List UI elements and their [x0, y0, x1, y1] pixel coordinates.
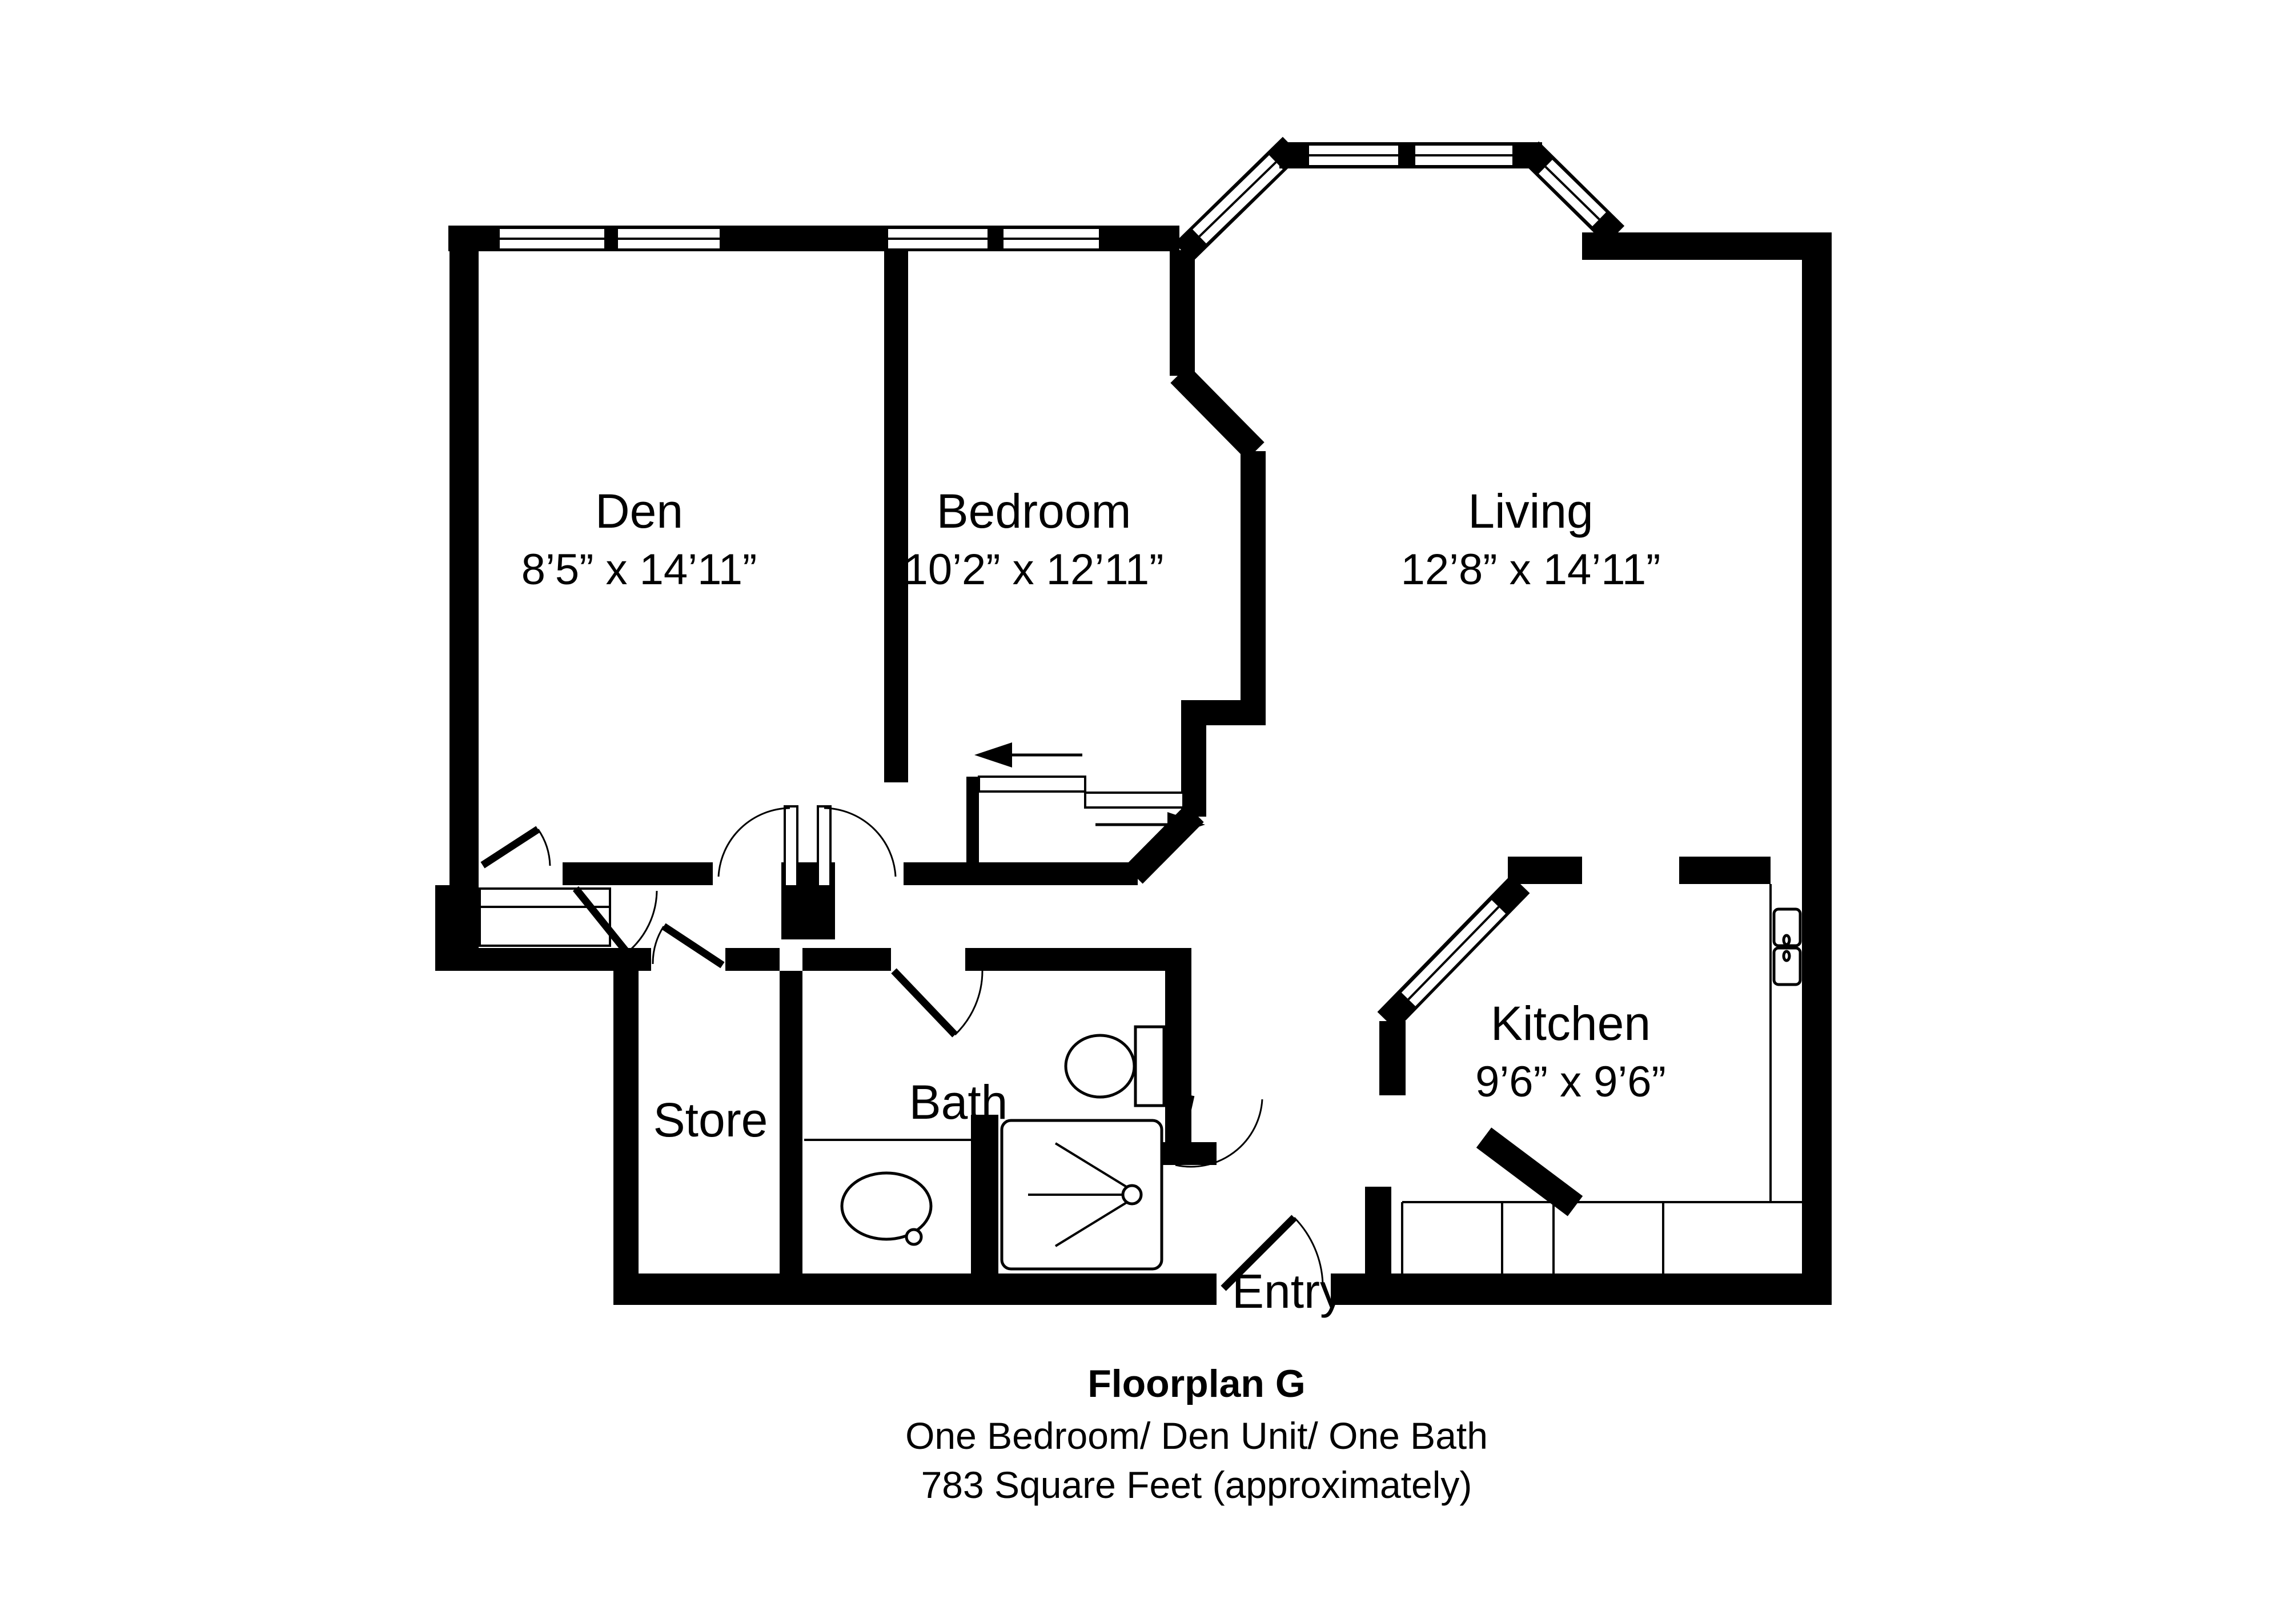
den-door-icon [483, 829, 550, 866]
store-door-icon [653, 926, 722, 965]
shower-partition [971, 1115, 998, 1274]
vanity-sink-icon [804, 1140, 971, 1244]
bath-door-icon [894, 971, 982, 1035]
bath-right-wall [1165, 948, 1191, 1165]
den-label: Den [595, 484, 683, 538]
bedroom-bottom-wall [904, 862, 966, 885]
kitchen-left-wall [1379, 1021, 1406, 1095]
floorplan-svg: Den 8’5” x 14’11” Bedroom 10’2” x 12’11”… [0, 0, 2296, 1623]
arrow-left-icon [974, 742, 1012, 768]
hall-door-icon [576, 889, 657, 953]
bedroom-label: Bedroom [937, 484, 1131, 538]
kitchen-cabinets-icon [1402, 1202, 1802, 1274]
den-bottom-wall [563, 862, 713, 885]
bath-top-wall-right [965, 948, 1165, 971]
caption: Floorplan G One Bedroom/ Den Unit/ One B… [905, 1362, 1488, 1506]
living-top-wall [1582, 232, 1832, 260]
bottom-wall-right [1331, 1274, 1832, 1305]
kitchen-dimensions: 9’6” x 9’6” [1475, 1058, 1666, 1106]
sliding-door-icon [974, 742, 1205, 837]
toilet-icon [1066, 1027, 1164, 1106]
store-left-wall [613, 971, 639, 1274]
caption-line3: 783 Square Feet (approximately) [921, 1464, 1472, 1506]
closet-icon [480, 889, 610, 946]
den-dimensions: 8’5” x 14’11” [521, 545, 757, 594]
bay-window-icon [1183, 146, 1615, 252]
bedroom-right-jog [1181, 700, 1266, 725]
kitchen-top-wall-right [1679, 857, 1771, 884]
caption-line2: One Bedroom/ Den Unit/ One Bath [905, 1415, 1488, 1457]
kitchen-top-wall-left [1508, 857, 1582, 884]
right-outer-wall [1802, 232, 1832, 1305]
store-label: Store [653, 1093, 768, 1147]
bedroom-living-divider-upper [1170, 250, 1195, 376]
living-dimensions: 12’8” x 14’11” [1401, 545, 1661, 594]
kitchen-label: Kitchen [1491, 997, 1651, 1050]
bath-label: Bath [909, 1075, 1008, 1129]
hall-bottom-left-wall [435, 948, 651, 971]
entry-label: Entry [1232, 1264, 1344, 1318]
bedroom-dimensions: 10’2” x 12’11” [904, 545, 1164, 594]
den-bedroom-divider [884, 251, 908, 782]
entry-right-wall [1365, 1187, 1391, 1274]
shower-icon [1002, 1120, 1162, 1269]
bedroom-living-divider [1241, 451, 1266, 702]
living-label: Living [1468, 484, 1593, 538]
den-left-wall [449, 226, 479, 891]
bottom-wall-left [613, 1274, 1217, 1305]
bedroom-right-wall-lower [1181, 724, 1206, 817]
floorplan-page: Den 8’5” x 14’11” Bedroom 10’2” x 12’11”… [0, 0, 2296, 1623]
kitchen-entry-angled-wall [1484, 1138, 1575, 1206]
bath-top-wall-left [802, 948, 891, 971]
store-top-wall [725, 948, 780, 971]
store-bath-divider [780, 971, 802, 1274]
kitchen-sink-icon [1771, 884, 1800, 1202]
caption-title: Floorplan G [1087, 1362, 1306, 1405]
left-jog-wall [435, 885, 479, 948]
bedroom-living-angle [1179, 374, 1255, 451]
bedroom-lower-wall [966, 862, 1138, 885]
